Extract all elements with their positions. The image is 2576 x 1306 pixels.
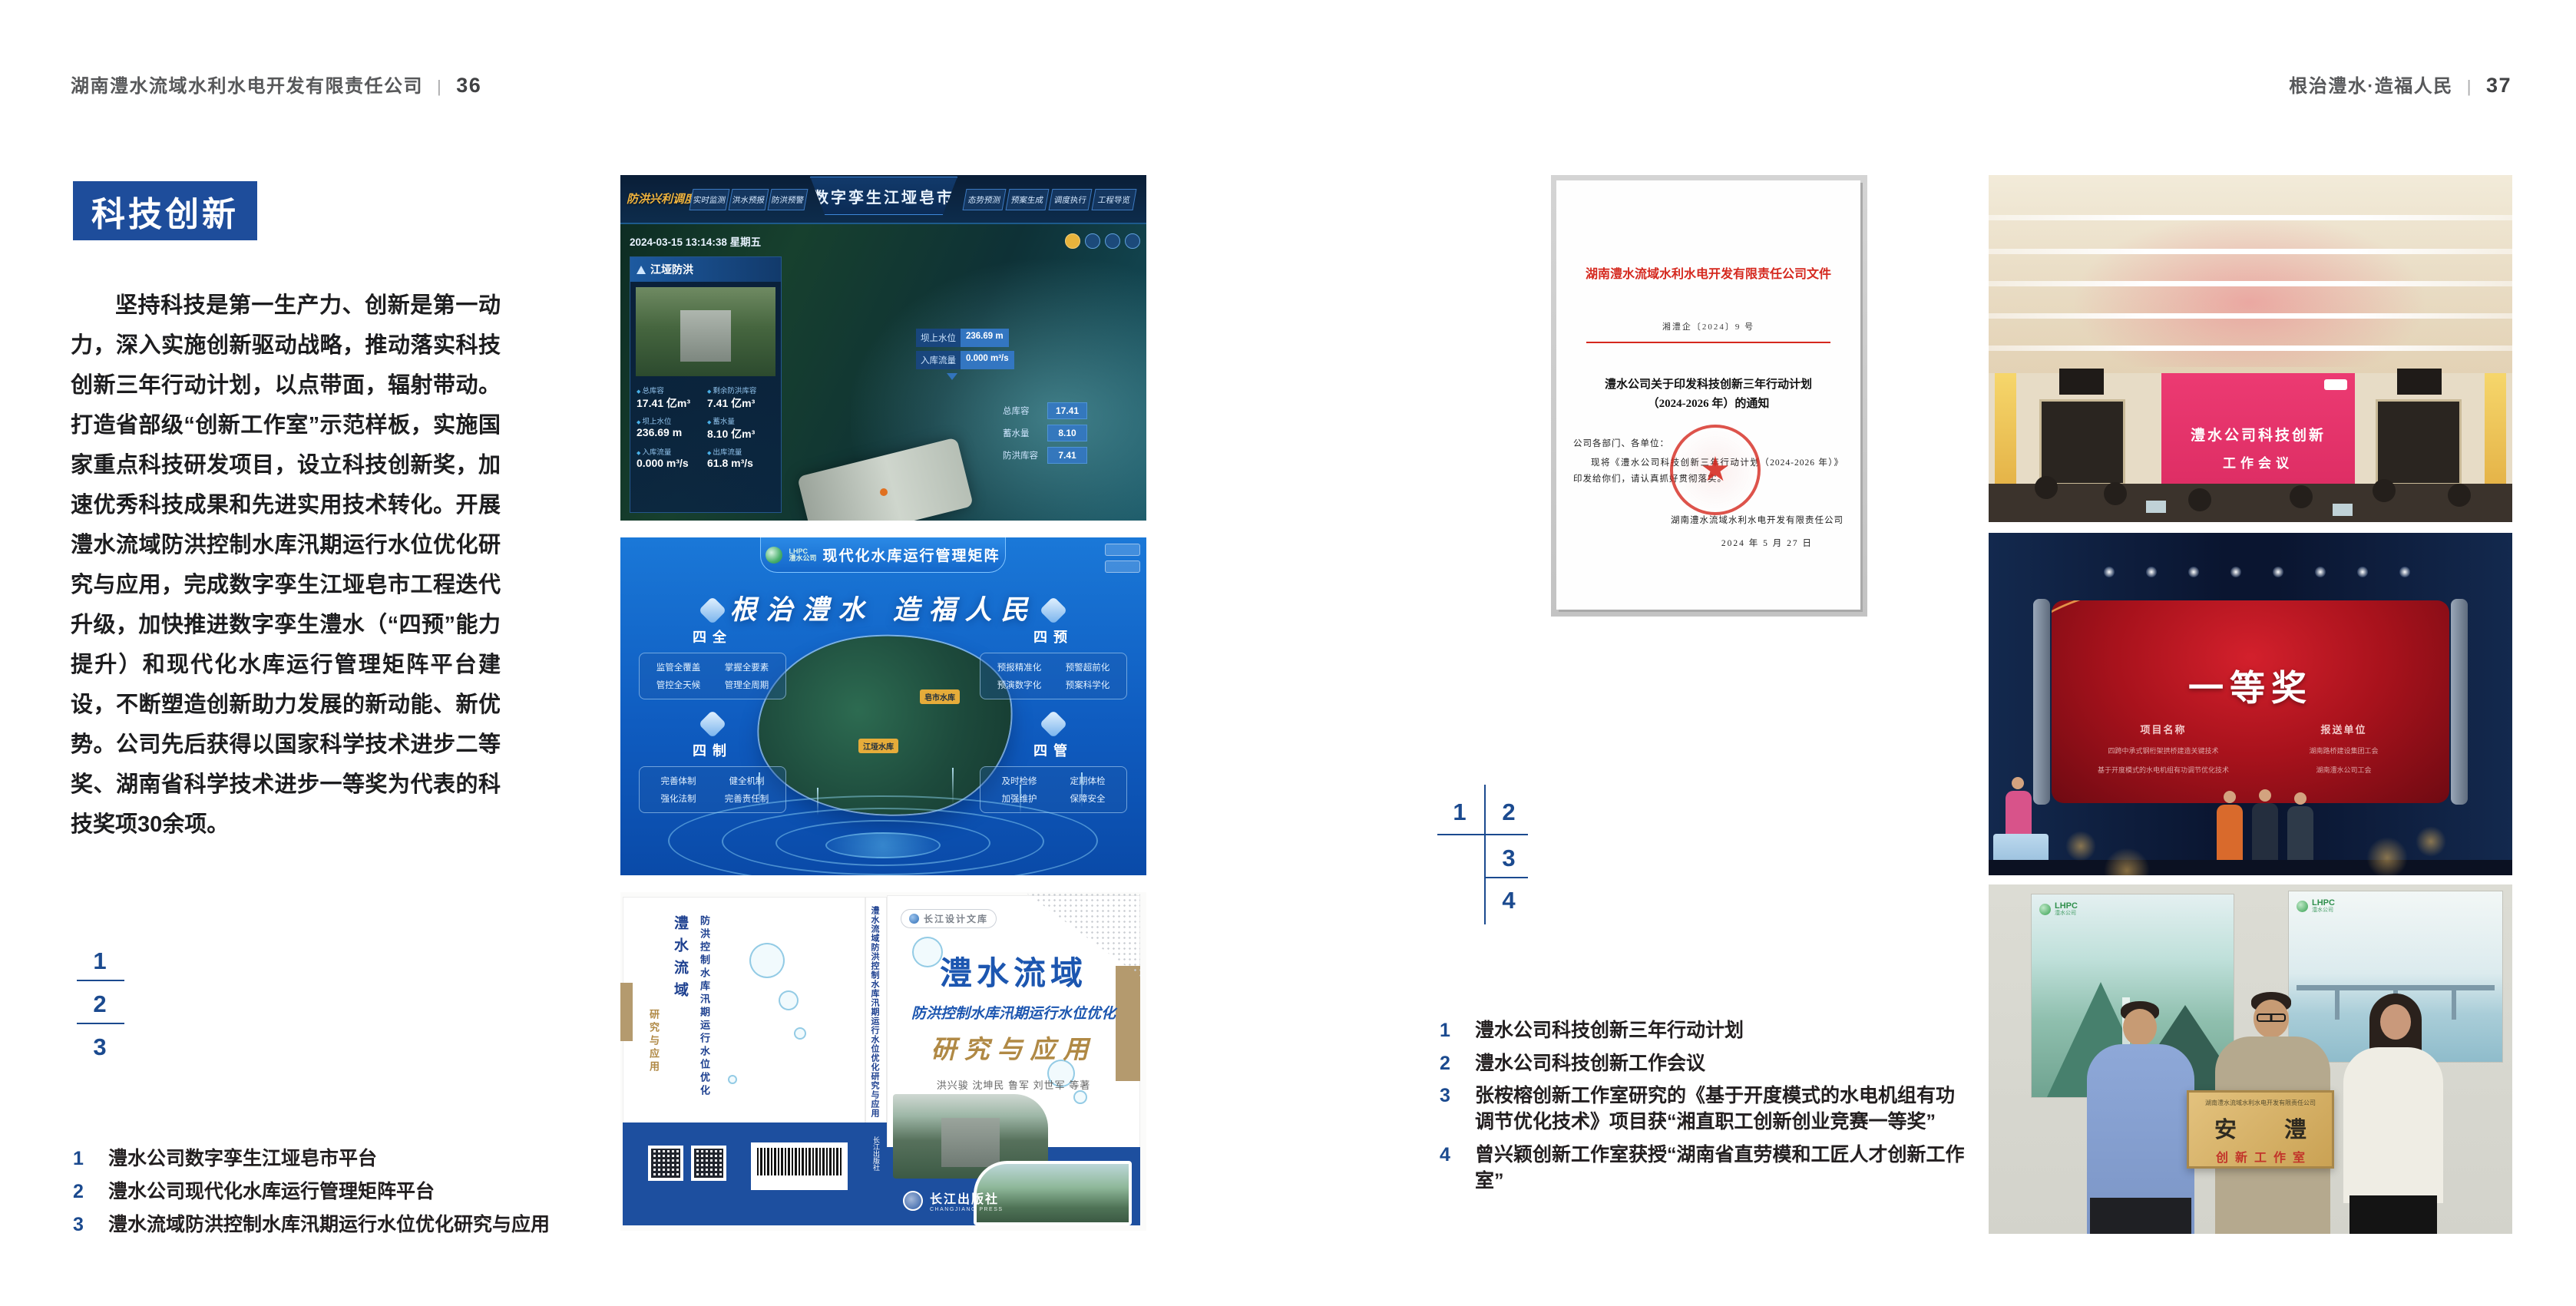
tab-dispatch-execution: 调度执行: [1049, 189, 1093, 210]
plaque-main-text: 安 澧: [2189, 1112, 2332, 1144]
slide-logo: [2324, 379, 2347, 390]
plaque-sub-text: 创新工作室: [2189, 1147, 2332, 1165]
poster-logo: LHPC 澧水公司: [2297, 899, 2335, 914]
bubble-decor: [779, 990, 799, 1010]
reservoir-stats-callout: 总库容17.41 蓄水量8.10 防洪库容7.41: [1003, 402, 1087, 469]
dashboard-title: 数字孪生江垭皂市: [810, 177, 957, 215]
section-title-badge: 科技创新: [73, 181, 257, 240]
attendee-silhouette: [2188, 488, 2211, 511]
lhpc-logo-icon: [2039, 904, 2051, 915]
dashboard-datetime: 2024-03-15 13:14:38 星期五: [630, 233, 761, 249]
section-body-text: 坚持科技是第一生产力、创新是第一动力，深入实施创新驱动战略，推动落实科技创新三年…: [71, 286, 501, 845]
official-seal: ★: [1670, 425, 1761, 515]
host-silhouette: [2012, 777, 2024, 789]
book-title-tail: 研究与应用: [898, 1029, 1129, 1066]
dashboard-mode-label: 防洪兴利调度: [627, 190, 696, 207]
pink-light-glow: [2058, 206, 2442, 367]
logo-subtext: 澧水公司: [789, 555, 816, 562]
matrix-group-sizhi: 四制 完善体制健全机制 强化法制完善责任制: [639, 714, 786, 813]
dam-structure: [941, 1118, 1000, 1167]
attendee-silhouette: [2290, 485, 2313, 508]
stage-light: [2357, 567, 2368, 577]
person-face: [2380, 1004, 2411, 1040]
back-title-tail: 研究与应用: [646, 1009, 661, 1074]
caption-row: 1 澧水公司数字孪生江垭皂市平台: [73, 1146, 549, 1172]
speaker-box: [2397, 369, 2442, 395]
project-column: 项目名称 四跨中承式钢桁架拱桥建造关键技术 基于开度模式的水电机组有功调节优化技…: [2098, 722, 2229, 775]
stat-cell: 总库容17.41 亿m³: [637, 385, 704, 411]
awardee-silhouette: [2217, 805, 2243, 861]
figure-index-3: 3: [77, 1033, 123, 1061]
light-strip: [1989, 313, 2512, 319]
back-title-main: 澧水流域: [670, 915, 690, 1004]
lhpc-logo-icon: [766, 547, 782, 564]
light-pin: [817, 788, 818, 815]
stage-light: [2104, 567, 2115, 577]
qr-code: [648, 1146, 683, 1181]
bridge-decor: [2297, 985, 2495, 990]
bubble-decor: [749, 943, 785, 978]
plaque-org-line: 湖南澧水流域水利水电开发有限责任公司: [2189, 1099, 2332, 1107]
tab-realtime-monitor: 实时监测: [689, 189, 730, 210]
photo-innovation-workshop-group: LHPC 澧水公司 LHPC 澧水公司: [1989, 884, 2512, 1234]
tab-plan-generation: 预案生成: [1006, 189, 1050, 210]
light-strip: [1989, 249, 2512, 254]
caption-number: 1: [73, 1146, 108, 1172]
book-title: 澧水流域: [898, 947, 1129, 994]
caption-number: 2: [73, 1179, 108, 1205]
motto: 根治澧水·造福人民: [2289, 71, 2453, 98]
qr-code: [691, 1146, 726, 1181]
barcode: [751, 1142, 848, 1190]
document-date: 2024 年 5 月 27 日: [1573, 537, 1844, 549]
spine-title: 澧水流域防洪控制水库汛期运行水位优化研究与应用: [868, 906, 881, 1126]
caption-row: 3 澧水流域防洪控制水库汛期运行水位优化研究与应用: [73, 1212, 564, 1238]
figure-matrix-platform: LHPC 澧水公司 现代化水库运行管理矩阵 根治澧水 造福人民 皂市水库 江垭水…: [620, 537, 1146, 875]
caption-row: 1 澧水公司科技创新三年行动计划: [1440, 1017, 1962, 1043]
halo-core: [825, 832, 941, 858]
figure-index-1: 1: [77, 947, 123, 975]
matrix-group-siyu: 四预 预报精准化预警超前化 预演数字化预案科学化: [980, 600, 1127, 699]
light-pin: [759, 772, 760, 806]
attendee-silhouette: [2104, 482, 2127, 505]
light-strip: [1989, 281, 2512, 286]
awardee-silhouette: [2224, 791, 2236, 803]
screen-pillar: [2451, 599, 2468, 805]
callout-pointer: [947, 373, 957, 380]
led-screen: 一等奖 项目名称 四跨中承式钢桁架拱桥建造关键技术 基于开度模式的水电机组有功调…: [2052, 600, 2449, 803]
caption-number: 4: [1440, 1142, 1475, 1168]
locate-icon: [1105, 233, 1120, 249]
stat-cell: 剩余防洪库容7.41 亿m³: [707, 385, 775, 411]
back-tan-bar: [620, 983, 633, 1041]
figure-book-cover: 澧水流域 防洪控制水库汛期运行水位优化 研究与应用 澧水流域防洪控制水库汛期运行…: [620, 892, 1146, 1231]
header-divider: |: [437, 77, 442, 97]
toolbar-button: [1105, 544, 1140, 556]
globe-icon: [909, 914, 919, 924]
brochure-spread: 湖南澧水流域水利水电开发有限责任公司 | 36 根治澧水·造福人民 | 37 科…: [0, 0, 2576, 1306]
sail-icon: [637, 266, 646, 274]
unit-column: 报送单位 湖南路桥建设集团工会 湖南澧水公司工会: [2283, 722, 2405, 775]
side-display: [2376, 399, 2462, 485]
figure-index-2: 2: [1490, 798, 1528, 826]
bokeh-decor: [2104, 848, 2150, 875]
laptop-glow: [2146, 501, 2166, 513]
matrix-group-siquan: 四全 监管全覆盖掌握全要素 管控全天候管理全周期: [639, 600, 786, 699]
user-icon: [1065, 233, 1080, 249]
lhpc-logo-icon: [2297, 901, 2308, 912]
light-strip: [1989, 346, 2512, 351]
index-divider: [1437, 834, 1528, 835]
figure-index-4: 4: [1490, 887, 1528, 914]
light-strip: [1989, 215, 2512, 220]
figure-digital-twin-dashboard: 防洪兴利调度 实时监测 洪水预报 防洪预警 数字孪生江垭皂市 态势预测 预案生成…: [620, 175, 1146, 521]
person-face: [2123, 1009, 2157, 1046]
person-pants: [2349, 1195, 2437, 1234]
index-divider: [1484, 877, 1528, 878]
publisher-logo-icon: [903, 1191, 923, 1211]
worker-figure: [880, 488, 888, 496]
caption-row: 3 张桉榕创新工作室研究的《基于开度模式的水电机组有功调节优化技术》项目获“湘直…: [1440, 1083, 1969, 1135]
caption-row: 2 澧水公司现代化水库运行管理矩阵平台: [73, 1179, 549, 1205]
map-marker-jiangya: 江垭水库: [858, 739, 898, 753]
front-titles: 澧水流域 防洪控制水库汛期运行水位优化 研究与应用 洪兴骏 沈坤民 鲁军 刘世军…: [898, 947, 1129, 1092]
official-document-photo: 湖南澧水流域水利水电开发有限责任公司文件 湘澧企〔2024〕9 号 澧水公司关于…: [1551, 175, 1867, 617]
company-name: 湖南澧水流域水利水电开发有限责任公司: [71, 71, 423, 98]
caption-number: 2: [1440, 1050, 1475, 1076]
award-title: 一等奖: [2052, 660, 2449, 711]
light-pin: [1081, 772, 1083, 808]
bokeh-decor: [2065, 831, 2096, 861]
glasses-icon: [2257, 1013, 2286, 1022]
stat-cell: 入库流量0.000 m³/s: [637, 446, 704, 469]
caption-row: 4 曾兴颖创新工作室获授“湖南省直劳模和工匠人才创新工作室”: [1440, 1142, 1969, 1194]
stage-light: [2188, 567, 2199, 577]
right-page-number: 37: [2486, 74, 2512, 98]
figure-index-3: 3: [1490, 845, 1528, 872]
matrix-group-siguan: 四管 及时检修定期体检 加强维护保障安全: [980, 714, 1127, 813]
left-page-header: 湖南澧水流域水利水电开发有限责任公司 | 36: [71, 71, 481, 98]
index-divider: [77, 980, 124, 981]
speaker-box: [2059, 369, 2104, 395]
layers-icon: [1085, 233, 1100, 249]
side-display: [2039, 399, 2125, 485]
tab-situation-forecast: 态势预测: [963, 189, 1007, 210]
book-subtitle: 防洪控制水库汛期运行水位优化: [898, 1002, 1129, 1023]
book-authors: 洪兴骏 沈坤民 鲁军 刘世军 等著: [898, 1077, 1129, 1092]
header-divider: |: [2467, 77, 2472, 97]
jiangya-flood-panel: 江垭防洪 总库容17.41 亿m³ 剩余防洪库容7.41 亿m³ 坝上水位236…: [630, 256, 782, 513]
bokeh-decor: [2416, 826, 2446, 857]
poster-logo: LHPC 澧水公司: [2039, 902, 2078, 917]
laptop-glow: [2333, 504, 2353, 516]
awardee-silhouette: [2287, 806, 2313, 861]
bridge-pier: [2335, 990, 2340, 1020]
figure-index-2: 2: [77, 990, 123, 1018]
dam-thumbnail: [636, 287, 775, 376]
dam-structure: [680, 310, 731, 362]
tab-project-tour: 工程导览: [1092, 189, 1137, 210]
light-pin: [952, 768, 954, 805]
caption-row: 2 澧水公司科技创新工作会议: [1440, 1050, 1962, 1076]
attendee-silhouette: [2035, 476, 2058, 499]
star-icon: ★: [1700, 453, 1730, 487]
awardee-silhouette: [2294, 792, 2306, 805]
stat-cell: 坝上水位236.69 m: [637, 415, 704, 441]
document-number: 湘澧企〔2024〕9 号: [1573, 320, 1844, 332]
publisher-block: 长江出版社 CHANGJIANG PRESS: [903, 1189, 1004, 1212]
tab-flood-forecast: 洪水预报: [729, 189, 769, 210]
person-pants: [2090, 1198, 2191, 1234]
awardee-silhouette: [2252, 803, 2278, 861]
diamond-icon: [1040, 710, 1068, 739]
light-pin: [1020, 785, 1021, 814]
attendee-silhouette: [2373, 479, 2396, 502]
map-marker-zaoshi: 皂市水库: [920, 689, 960, 704]
figure-index-1: 1: [1440, 798, 1479, 826]
caption-text: 澧水公司科技创新工作会议: [1475, 1050, 1705, 1076]
diamond-icon: [699, 710, 727, 739]
stage-light: [2146, 567, 2157, 577]
caption-text: 张桉榕创新工作室研究的《基于开度模式的水电机组有功调节优化技术》项目获“湘直职工…: [1475, 1083, 1969, 1135]
attendee-silhouette: [2448, 484, 2471, 507]
matrix-header: LHPC 澧水公司 现代化水库运行管理矩阵: [760, 537, 1006, 573]
stage-floor: [1989, 860, 2512, 875]
audience-seats: [1989, 484, 2512, 522]
caption-text: 澧水公司科技创新三年行动计划: [1475, 1017, 1744, 1043]
spine-publisher: 长江出版社: [871, 1136, 881, 1171]
document-paper: 湖南澧水流域水利水电开发有限责任公司文件 湘澧企〔2024〕9 号 澧水公司关于…: [1556, 180, 1860, 610]
stage-light: [2399, 567, 2410, 577]
caption-text: 澧水流域防洪控制水库汛期运行水位优化研究与应用: [108, 1212, 550, 1238]
bokeh-decor: [2366, 837, 2408, 875]
caption-text: 澧水公司数字孪生江垭皂市平台: [108, 1146, 377, 1172]
stage-light: [2315, 567, 2326, 577]
screen-pillar: [2033, 599, 2050, 805]
tab-flood-warning: 防洪预警: [768, 189, 809, 210]
caption-number: 1: [1440, 1017, 1475, 1043]
workshop-plaque: 湖南澧水流域水利水电开发有限责任公司 安 澧 创新工作室: [2187, 1090, 2334, 1169]
bubble-decor: [794, 1027, 806, 1040]
right-page-header: 根治澧水·造福人民 | 37: [2289, 71, 2512, 98]
bridge-pier: [2452, 990, 2456, 1020]
photo-award-ceremony: 一等奖 项目名称 四跨中承式钢桁架拱桥建造关键技术 基于开度模式的水电机组有功调…: [1989, 533, 2512, 875]
panel-title: 江垭防洪: [650, 262, 693, 277]
document-letterhead: 湖南澧水流域水利水电开发有限责任公司文件: [1573, 180, 1844, 282]
photo-innovation-meeting: 澧水公司科技创新 工作会议: [1989, 175, 2512, 522]
left-page-number: 36: [456, 74, 481, 98]
back-title-sub: 防洪控制水库汛期运行水位优化: [697, 915, 712, 1098]
stage-light: [2230, 567, 2241, 577]
bubble-decor: [728, 1075, 737, 1084]
caption-text: 澧水公司现代化水库运行管理矩阵平台: [108, 1179, 435, 1205]
red-rule: [1586, 342, 1830, 343]
caption-number: 3: [73, 1212, 108, 1238]
matrix-title: 现代化水库运行管理矩阵: [823, 544, 1000, 565]
caption-text: 曾兴颖创新工作室获授“湖南省直劳模和工匠人才创新工作室”: [1475, 1142, 1969, 1194]
stage-light: [2273, 567, 2283, 577]
toolbar-button: [1105, 560, 1140, 573]
alert-icon: [1125, 233, 1140, 249]
index-divider: [1484, 785, 1486, 924]
awardee-silhouette: [2259, 789, 2271, 802]
index-divider: [77, 1023, 124, 1024]
diamond-icon: [699, 597, 727, 625]
stat-cell: 蓄水量8.10 亿m³: [707, 415, 775, 441]
map-callout: 坝上水位236.69 m 入库流量0.000 m³/s: [916, 329, 1014, 380]
bubble-decor: [1073, 1090, 1087, 1104]
notice-title: 澧水公司关于印发科技创新三年行动计划 （2024-2026 年）的通知: [1573, 375, 1844, 414]
series-badge: 长江设计文库: [901, 909, 997, 928]
caption-number: 3: [1440, 1083, 1475, 1109]
diamond-icon: [1040, 597, 1068, 625]
person-torso-white-tee: [2343, 1047, 2443, 1203]
stat-cell: 出库流量61.8 m³/s: [707, 446, 775, 469]
document-signer: 湖南澧水流域水利水电开发有限责任公司: [1573, 514, 1844, 526]
